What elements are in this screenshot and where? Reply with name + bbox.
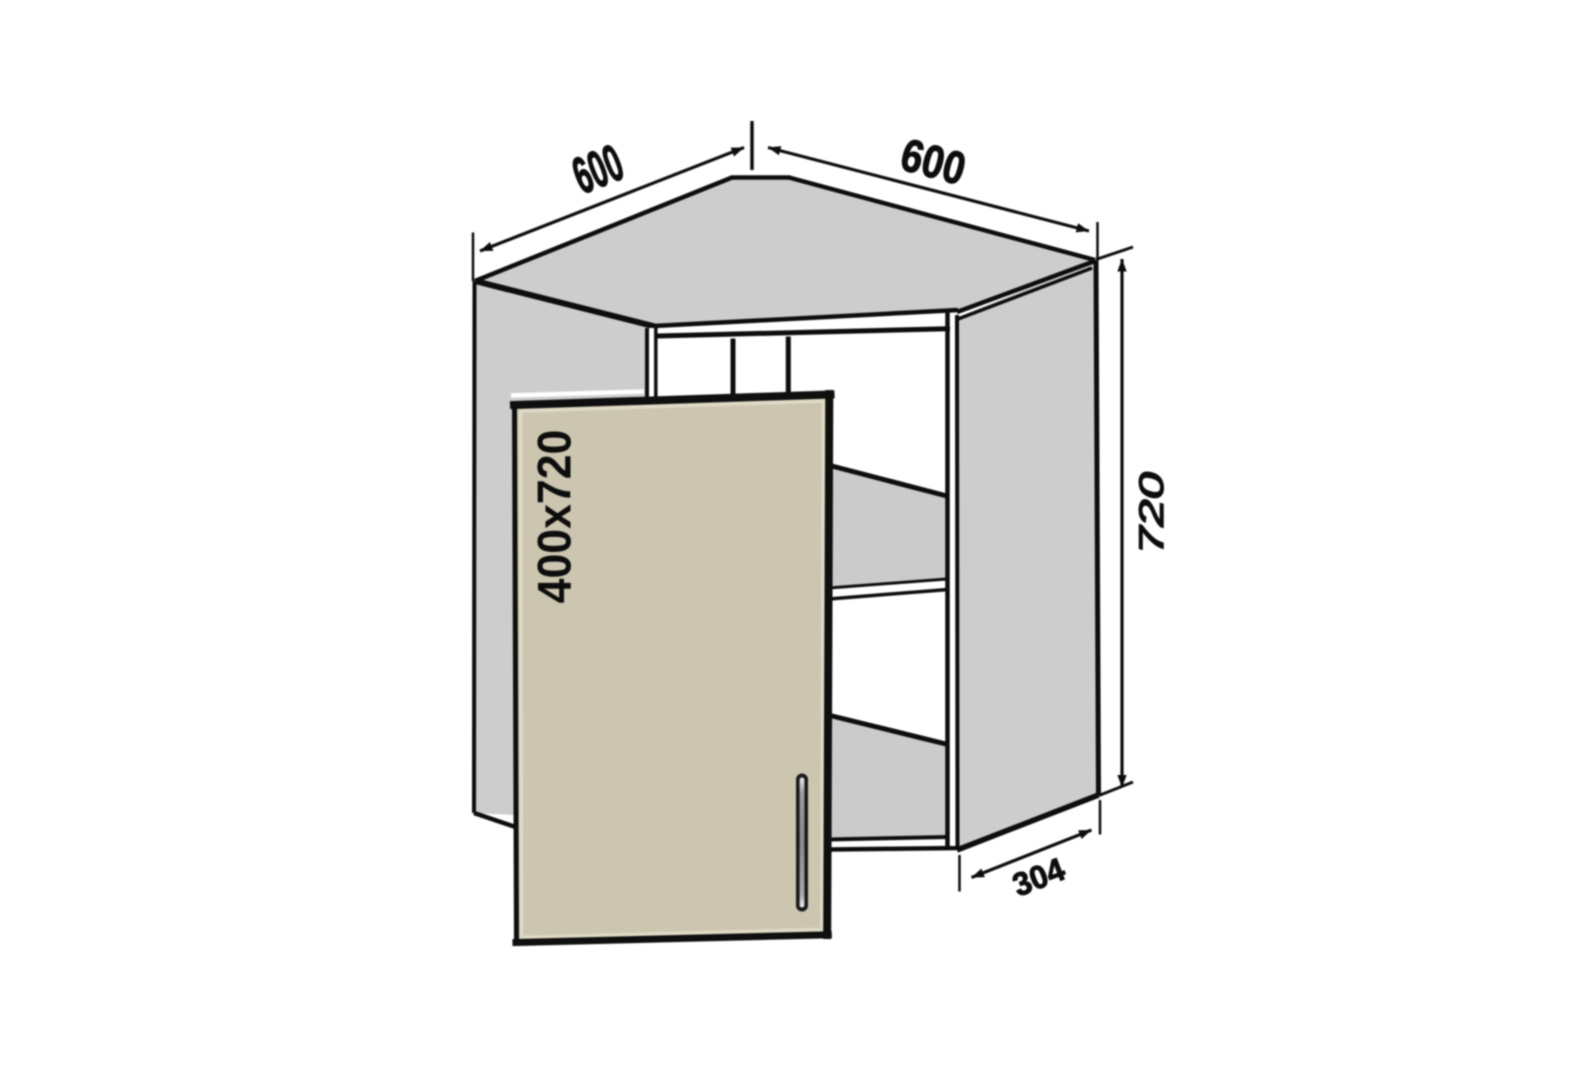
svg-text:720: 720 (1132, 472, 1170, 554)
svg-text:400x720: 400x720 (527, 430, 581, 604)
